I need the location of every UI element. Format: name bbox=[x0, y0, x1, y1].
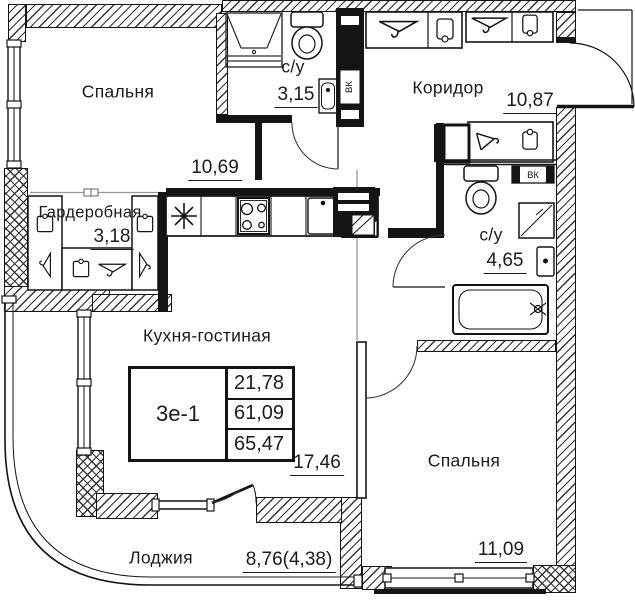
bath1-door bbox=[292, 123, 338, 169]
vent-shaft-label: ВК bbox=[344, 81, 355, 93]
room-label-wardrobe: Гардеробная bbox=[38, 204, 141, 223]
room-label-kitchen: Кухня-гостиная bbox=[143, 326, 271, 347]
room-label-bath2: с/у bbox=[479, 225, 502, 246]
vent-shaft-bath2: ВК bbox=[512, 166, 554, 183]
sink-icon bbox=[319, 79, 337, 113]
shower-tray-icon bbox=[519, 203, 554, 238]
unit-value-3: 65,47 bbox=[228, 430, 292, 459]
floor-plan: ВК bbox=[0, 0, 635, 600]
room-area-bath2: 4,65 bbox=[484, 250, 527, 274]
balcony-window bbox=[152, 499, 214, 511]
room-area-bedroom1: 10,69 bbox=[188, 157, 242, 181]
wardrobe-sliding-partition bbox=[30, 189, 158, 196]
unit-id: 3е-1 bbox=[131, 369, 228, 459]
room-label-loggia: Лоджия bbox=[129, 548, 193, 569]
washing-machine-icon bbox=[434, 124, 469, 162]
room-area-bath1: 3,15 bbox=[275, 84, 318, 108]
room-label-bedroom2: Спальня bbox=[428, 451, 500, 472]
room-label-corridor: Коридор bbox=[412, 78, 483, 99]
corridor-cabinet-3 bbox=[468, 122, 553, 162]
wall-under-window bbox=[374, 589, 546, 594]
vent-shaft-label: ВК bbox=[527, 170, 539, 181]
wall-bedroom1-nook bbox=[255, 123, 262, 180]
room-area-bedroom2: 11,09 bbox=[475, 539, 527, 563]
corridor-cabinet-1 bbox=[366, 12, 462, 48]
corridor-cabinet-2 bbox=[466, 12, 553, 42]
wall-bath1-south bbox=[216, 115, 292, 123]
room-area-wardrobe: 3,18 bbox=[91, 226, 134, 250]
bath2-door bbox=[393, 235, 445, 287]
wall-bedroom2-west-stub bbox=[357, 342, 366, 498]
kitchen-west-window bbox=[77, 310, 91, 455]
bedroom2-window bbox=[383, 568, 534, 588]
room-label-bedroom1: Спальня bbox=[82, 82, 154, 103]
room-area-corridor: 10,87 bbox=[503, 90, 557, 114]
room-label-bath1: с/у bbox=[281, 57, 304, 78]
toilet-icon bbox=[464, 166, 498, 214]
vent-shaft-bath1: ВК bbox=[336, 8, 364, 127]
unit-value-2: 61,09 bbox=[228, 400, 292, 431]
unit-value-1: 21,78 bbox=[228, 369, 292, 400]
toilet-icon bbox=[291, 12, 323, 59]
wall-bath2-jut bbox=[388, 228, 444, 238]
vent-shaft-corridor bbox=[333, 187, 375, 237]
entrance-door bbox=[557, 10, 634, 107]
unit-info-table: 3е-1 21,78 61,09 65,47 bbox=[128, 366, 295, 462]
entrance-jamb bbox=[556, 37, 576, 43]
room-area-loggia: 8,76(4,38) bbox=[243, 549, 336, 573]
room-area-kitchen: 17,46 bbox=[290, 452, 344, 476]
shower-icon bbox=[226, 13, 282, 67]
bedroom2-door bbox=[366, 346, 417, 398]
bedroom1-window bbox=[7, 40, 21, 168]
balcony-door bbox=[212, 485, 256, 503]
water-heater-icon bbox=[537, 247, 554, 276]
bathtub-icon bbox=[453, 285, 548, 334]
